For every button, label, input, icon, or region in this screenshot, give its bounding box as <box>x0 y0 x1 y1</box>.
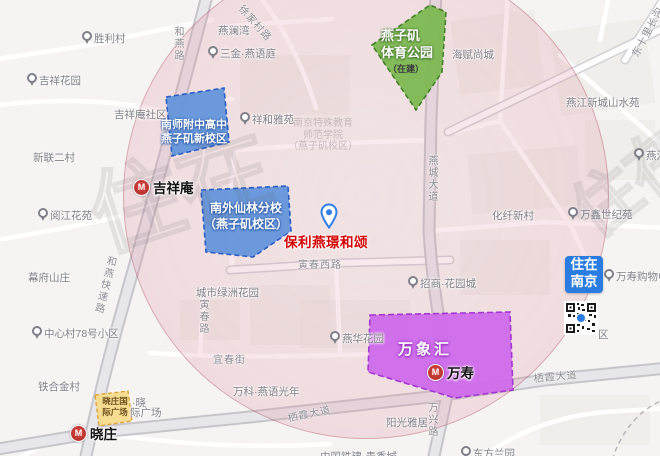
brand-badge: 住在 南京 <box>565 256 603 293</box>
area-school-nanshi <box>166 88 229 156</box>
brand-badge-line: 南京 <box>565 273 603 290</box>
brand-badge-line: 住在 <box>565 256 603 273</box>
area-sports-park <box>372 5 446 110</box>
map-canvas[interactable]: 胜利村吉祥花园吉祥庵社区新联二村阅江花苑燕澜湾三金·燕语庭祥和雅苑海赋尚城燕江新… <box>0 0 660 456</box>
area-mall-mixc <box>368 312 513 398</box>
area-plaza-xiaozhuang <box>95 391 132 426</box>
property-name-label: 保利燕璟和颂 <box>284 231 368 251</box>
qr-code <box>564 301 598 340</box>
area-school-nanwai <box>201 186 291 257</box>
